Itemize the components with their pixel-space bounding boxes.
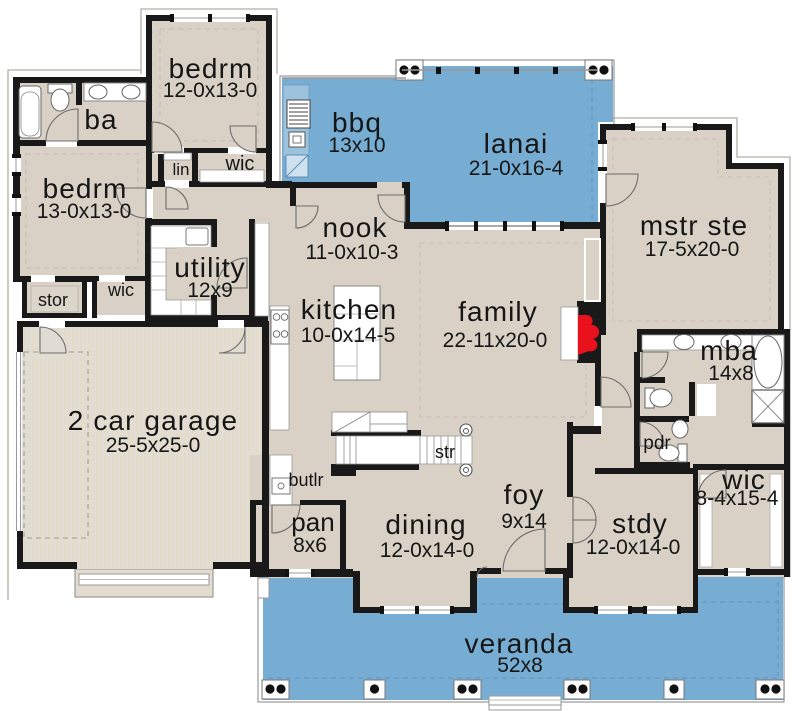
svg-text:ba: ba bbox=[84, 104, 117, 135]
svg-text:12-0x14-0: 12-0x14-0 bbox=[586, 536, 681, 559]
svg-text:9x14: 9x14 bbox=[501, 510, 547, 533]
svg-text:nook: nook bbox=[322, 212, 387, 243]
svg-text:12-0x13-0: 12-0x13-0 bbox=[163, 79, 258, 102]
svg-text:13x10: 13x10 bbox=[328, 134, 385, 157]
svg-text:wic: wic bbox=[107, 280, 134, 300]
svg-text:kitchen: kitchen bbox=[301, 294, 397, 325]
svg-text:17-5x20-0: 17-5x20-0 bbox=[645, 238, 740, 261]
svg-text:lanai: lanai bbox=[484, 128, 549, 159]
svg-text:8x6: 8x6 bbox=[293, 534, 327, 557]
svg-text:25-5x25-0: 25-5x25-0 bbox=[106, 434, 201, 457]
svg-text:str: str bbox=[435, 442, 455, 462]
svg-text:21-0x16-4: 21-0x16-4 bbox=[469, 157, 564, 180]
svg-text:pan: pan bbox=[291, 507, 334, 537]
svg-text:stor: stor bbox=[38, 290, 68, 310]
svg-text:pdr: pdr bbox=[643, 433, 671, 454]
svg-text:wic: wic bbox=[225, 153, 255, 175]
svg-text:22-11x20-0: 22-11x20-0 bbox=[443, 329, 548, 352]
svg-text:lin: lin bbox=[172, 160, 189, 179]
svg-text:butlr: butlr bbox=[288, 470, 323, 490]
svg-text:stdy: stdy bbox=[612, 508, 668, 539]
svg-text:family: family bbox=[458, 296, 538, 327]
svg-text:12-0x14-0: 12-0x14-0 bbox=[380, 539, 475, 562]
svg-text:2 car garage: 2 car garage bbox=[68, 405, 238, 436]
svg-text:foy: foy bbox=[504, 479, 545, 510]
svg-text:14x8: 14x8 bbox=[708, 362, 754, 385]
svg-text:11-0x10-3: 11-0x10-3 bbox=[305, 241, 398, 264]
svg-text:dining: dining bbox=[385, 509, 466, 540]
svg-text:13-0x13-0: 13-0x13-0 bbox=[37, 200, 132, 223]
svg-text:8-4x15-4: 8-4x15-4 bbox=[696, 487, 779, 510]
svg-text:mstr ste: mstr ste bbox=[640, 210, 748, 241]
svg-text:10-0x14-5: 10-0x14-5 bbox=[301, 324, 396, 347]
svg-text:52x8: 52x8 bbox=[497, 654, 543, 677]
svg-text:12x9: 12x9 bbox=[187, 279, 233, 302]
